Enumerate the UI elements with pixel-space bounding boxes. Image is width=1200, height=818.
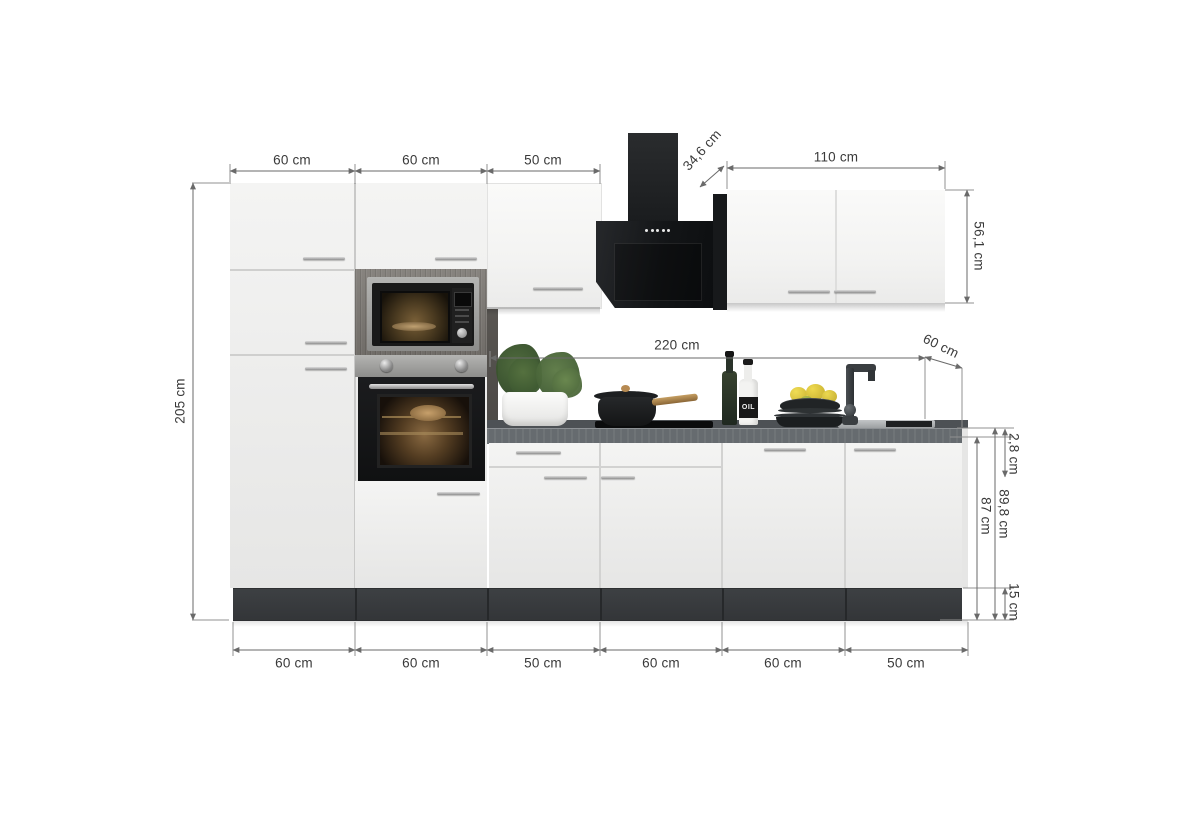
sink-basin	[886, 421, 932, 427]
dim-label-top-width-2: 60 cm	[402, 153, 440, 168]
plinth-seam	[487, 588, 489, 620]
door-handle	[854, 448, 896, 451]
dim-label-hood-depth: 34,6 cm	[680, 127, 724, 174]
dim-label-worktop-depth: 60 cm	[921, 331, 962, 361]
kitchen-dimension-diagram: OIL	[0, 0, 1200, 818]
hood-button	[656, 229, 659, 232]
door-handle	[533, 287, 583, 290]
hood-button	[667, 229, 670, 232]
door-handle	[764, 448, 806, 451]
microwave-dial	[457, 328, 467, 338]
worktop-front	[487, 428, 968, 444]
faucet-base	[842, 416, 858, 425]
microwave-buttons	[455, 309, 469, 325]
oil-bottle-label: OIL	[739, 397, 758, 418]
door-handle	[544, 476, 587, 479]
dim-label-wall-cabinet-height: 56,1 cm	[972, 221, 987, 270]
saucepan	[598, 397, 656, 426]
end-panel	[962, 428, 968, 588]
dim-label-bottom-width-5: 60 cm	[764, 656, 802, 671]
dim-label-base-total-height: 89,8 cm	[997, 489, 1012, 538]
wall-cabinet-50	[487, 183, 602, 309]
dim-label-bottom-width-1: 60 cm	[275, 656, 313, 671]
base-cabinet-run	[489, 443, 962, 588]
dim-label-bottom-width-6: 50 cm	[887, 656, 925, 671]
cabinet-seam	[230, 354, 355, 356]
plinth	[233, 588, 962, 621]
dim-label-total-height: 205 cm	[173, 378, 188, 423]
faucet-spout	[868, 370, 875, 381]
oil-bottle-white-cap	[743, 359, 753, 365]
plinth-seam	[722, 588, 724, 620]
saucepan-handle	[652, 393, 699, 406]
cabinet-seam	[230, 269, 355, 271]
door-handle	[788, 290, 830, 293]
hood-button	[662, 229, 665, 232]
drawer-handle	[516, 451, 561, 454]
dim-label-base-cabinet-height: 87 cm	[979, 497, 994, 535]
dim-label-wall-cabinet-width: 110 cm	[814, 150, 858, 165]
microwave-food	[392, 322, 436, 331]
dim-label-top-width-3: 50 cm	[524, 153, 562, 168]
faucet-joint	[844, 404, 856, 416]
hood-button	[645, 229, 648, 232]
cabinet-seam	[599, 443, 601, 588]
hood-glass-panel	[614, 243, 702, 301]
oil-bottle-dark-neck	[726, 355, 733, 373]
floor-shadow	[233, 620, 968, 627]
microwave-display	[454, 292, 472, 307]
door-handle	[834, 290, 876, 293]
dim-label-bottom-width-3: 50 cm	[524, 656, 562, 671]
dim-label-bottom-width-2: 60 cm	[402, 656, 440, 671]
cabinet-seam	[835, 190, 837, 303]
dim-label-bottom-width-4: 60 cm	[642, 656, 680, 671]
oven-knob	[380, 359, 393, 372]
dim-label-plinth-height: 15 cm	[1007, 583, 1022, 621]
plinth-seam	[845, 588, 847, 620]
oil-bottle-dark-cap	[725, 351, 734, 357]
door-handle	[435, 257, 477, 260]
cabinet-shadow	[487, 307, 600, 315]
oven-tray	[380, 432, 463, 435]
door-handle	[437, 492, 480, 495]
oven-knob	[455, 359, 468, 372]
drawer-seam	[489, 466, 722, 468]
plinth-seam	[600, 588, 602, 620]
oil-bottle-white-neck	[744, 363, 752, 381]
plinth-seam	[355, 588, 357, 620]
saucepan-lid-knob	[621, 385, 630, 392]
oven-handle	[369, 384, 474, 389]
microwave-window	[380, 291, 450, 343]
door-handle	[303, 257, 345, 260]
bowl-stack	[776, 417, 844, 427]
hood-button	[651, 229, 654, 232]
dim-label-worktop-thickness: 2,8 cm	[1007, 433, 1022, 475]
plant-pot	[502, 392, 568, 426]
hood-side-panel	[713, 194, 727, 310]
door-handle	[305, 341, 347, 344]
cabinet-seam	[844, 443, 846, 588]
dim-label-top-width-1: 60 cm	[273, 153, 311, 168]
cabinet-shadow	[727, 303, 945, 312]
tower-bottom-door	[355, 481, 487, 588]
door-handle	[601, 476, 635, 479]
hood-chimney	[628, 133, 678, 223]
cabinet-seam	[721, 443, 723, 588]
oil-bottle-dark	[722, 371, 737, 425]
oven-food	[410, 405, 446, 421]
door-handle	[305, 367, 347, 370]
dim-label-worktop-length: 220 cm	[654, 338, 699, 353]
